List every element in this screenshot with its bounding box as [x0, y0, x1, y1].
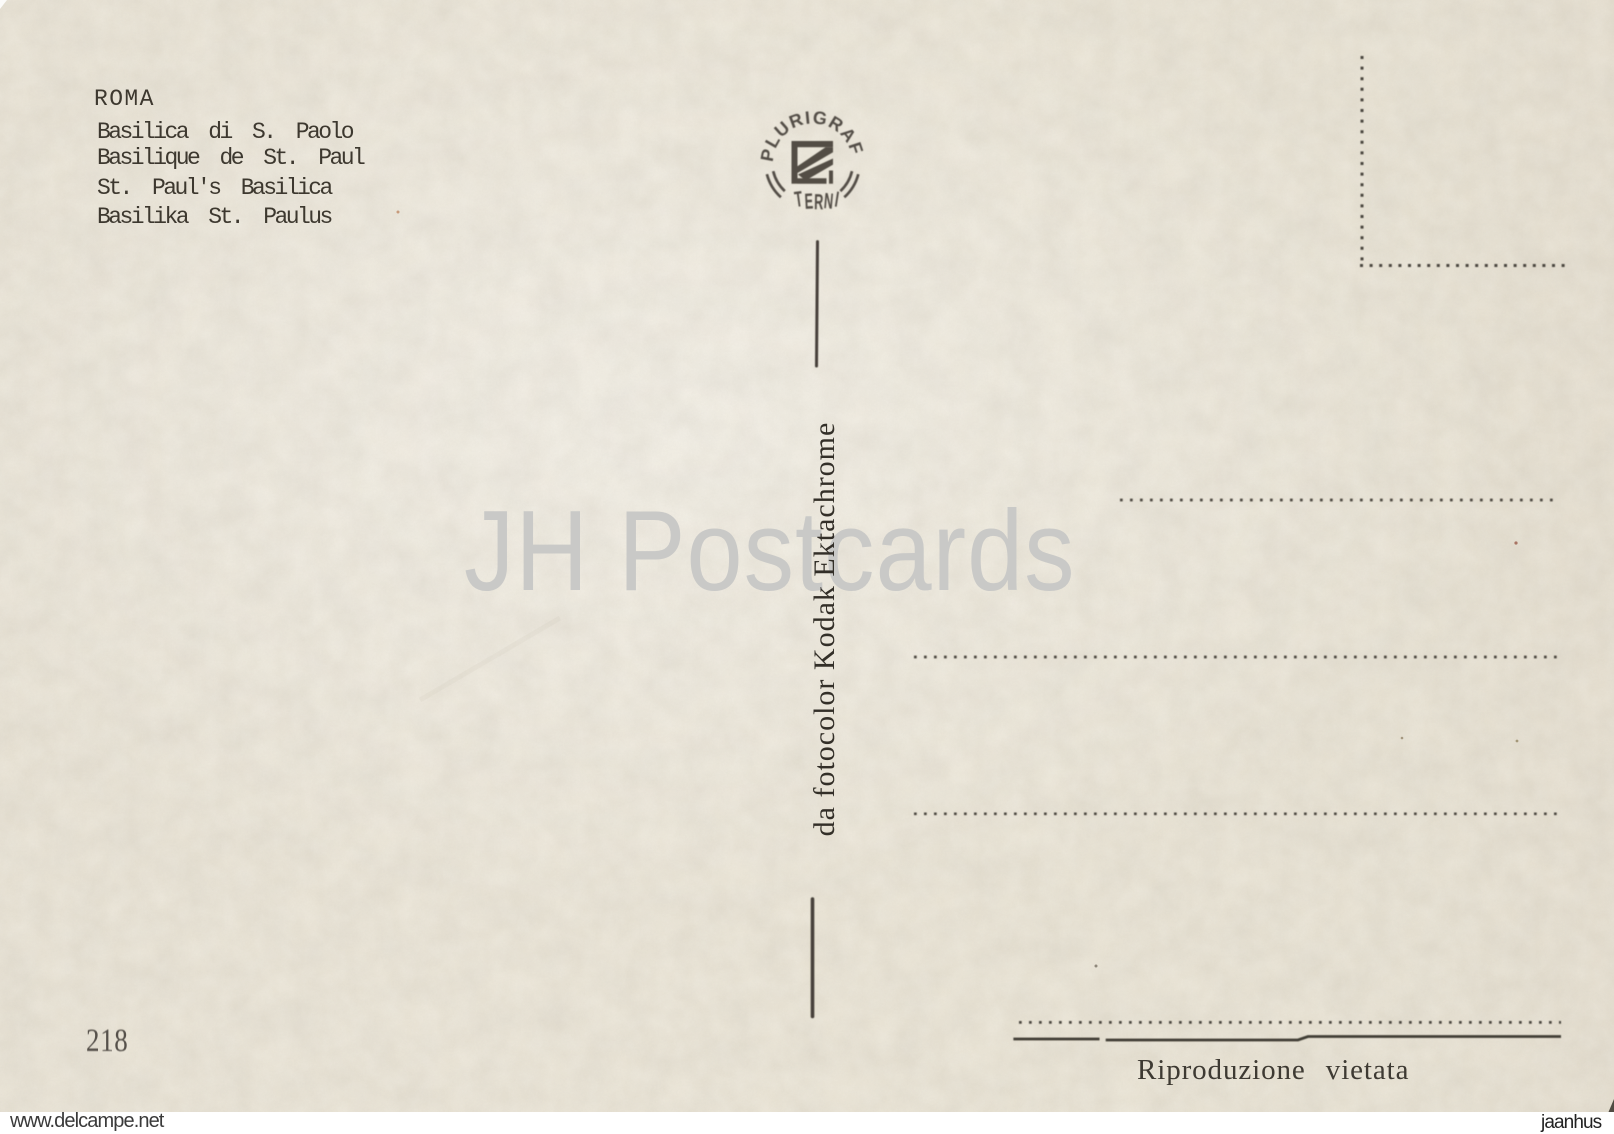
- svg-text:E: E: [804, 189, 814, 214]
- svg-text:PLURIGRAF: PLURIGRAF: [757, 107, 867, 163]
- svg-text:T: T: [793, 187, 804, 212]
- svg-text:I: I: [833, 187, 840, 212]
- svg-text:R: R: [814, 190, 824, 215]
- svg-text:N: N: [823, 188, 834, 213]
